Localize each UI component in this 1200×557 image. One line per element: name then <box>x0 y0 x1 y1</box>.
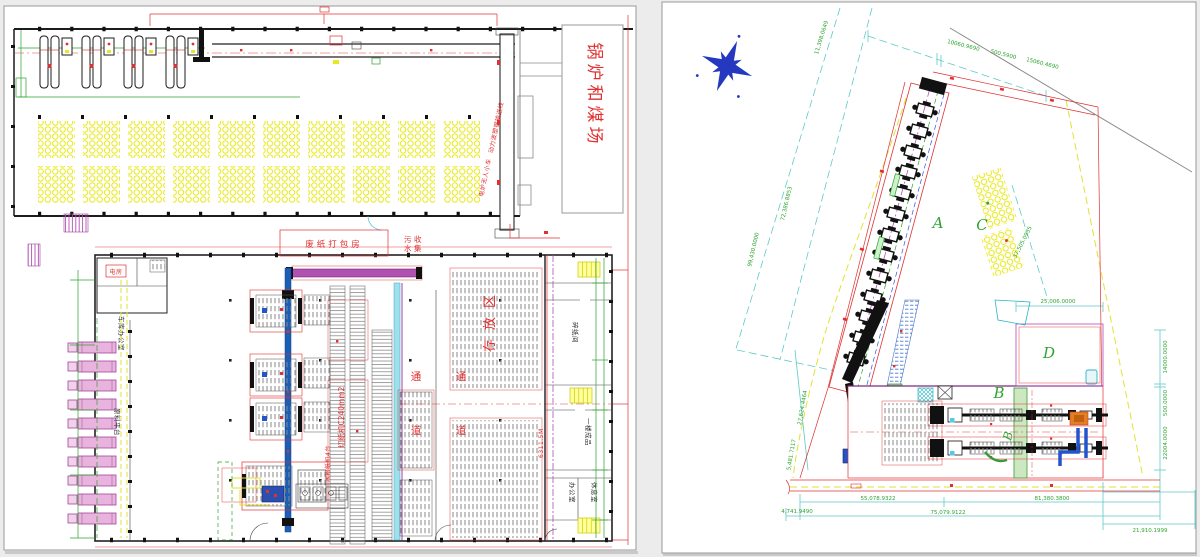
dim-bottom-1: 55,078.9322 <box>861 496 896 502</box>
sewage-char-4: 集 <box>414 243 422 253</box>
aisle-char-2b: 道 <box>456 424 467 437</box>
aisle-char-1a: 通 <box>411 371 422 383</box>
waste-packing-label: 废纸打包房 <box>305 239 363 250</box>
area-label-c: C <box>976 216 988 234</box>
area-label-d: D <box>1042 344 1055 362</box>
area-label-b: B <box>992 384 1004 402</box>
pool-icon <box>1086 370 1097 384</box>
cad-workspace: 动力波塑钢输送线 电炉无人小车 锅炉和煤场 <box>0 0 1200 557</box>
purple-conveyor <box>292 269 418 277</box>
material-platform-label: 原料平台 <box>113 408 122 436</box>
dim-d-width: 25,006.0000 <box>1041 299 1076 305</box>
cyan-conveyor <box>394 283 400 540</box>
aisle-char-2a: 通 <box>456 371 467 383</box>
green-bar <box>1014 388 1027 478</box>
room-office-label: 办公室 <box>568 482 577 503</box>
dim-right-1: 14000.0000 <box>1163 340 1169 374</box>
sewage-char-1: 污 <box>404 235 412 244</box>
boiler-coal-title-box: 锅炉和煤场 <box>562 25 623 213</box>
dim-right-2: 500.0000 <box>1163 389 1169 416</box>
aisle-char-1b: 道 <box>411 424 422 437</box>
workshop-building: 电房 车库办公室 原料平台 废纸 <box>68 230 612 547</box>
dim-bottom-4: 75,079.9122 <box>931 510 966 516</box>
cad-canvas: 动力波塑钢输送线 电炉无人小车 锅炉和煤场 <box>0 0 1200 557</box>
room-shred-label: 碎纸间 <box>571 322 580 343</box>
paper-machines-label: 水松纸机4台 <box>324 445 332 482</box>
room-finished-label: 一楼成品 <box>584 418 593 446</box>
boiler-coal-title: 锅炉和煤场 <box>584 43 604 148</box>
dim-bottom-3: 4,741.9490 <box>781 509 813 515</box>
room-rest-label: 休息室 <box>590 482 599 503</box>
dim-bottom-5: 21,910.1999 <box>1133 528 1168 534</box>
cutter-label: 切纸机C240mm2 <box>336 386 346 448</box>
sewage-char-2: 水 <box>404 243 412 253</box>
dim-right-3: 22004.0000 <box>1163 426 1169 460</box>
electric-room-label: 电房 <box>109 268 122 276</box>
sewage-char-3: 收 <box>414 234 422 244</box>
red-note-label: 6311.5M <box>538 428 545 458</box>
area-label-a: A <box>931 214 944 232</box>
storage-zone-label: 存放区 <box>483 286 498 352</box>
dim-bottom-2: 81,380.3800 <box>1035 496 1070 502</box>
